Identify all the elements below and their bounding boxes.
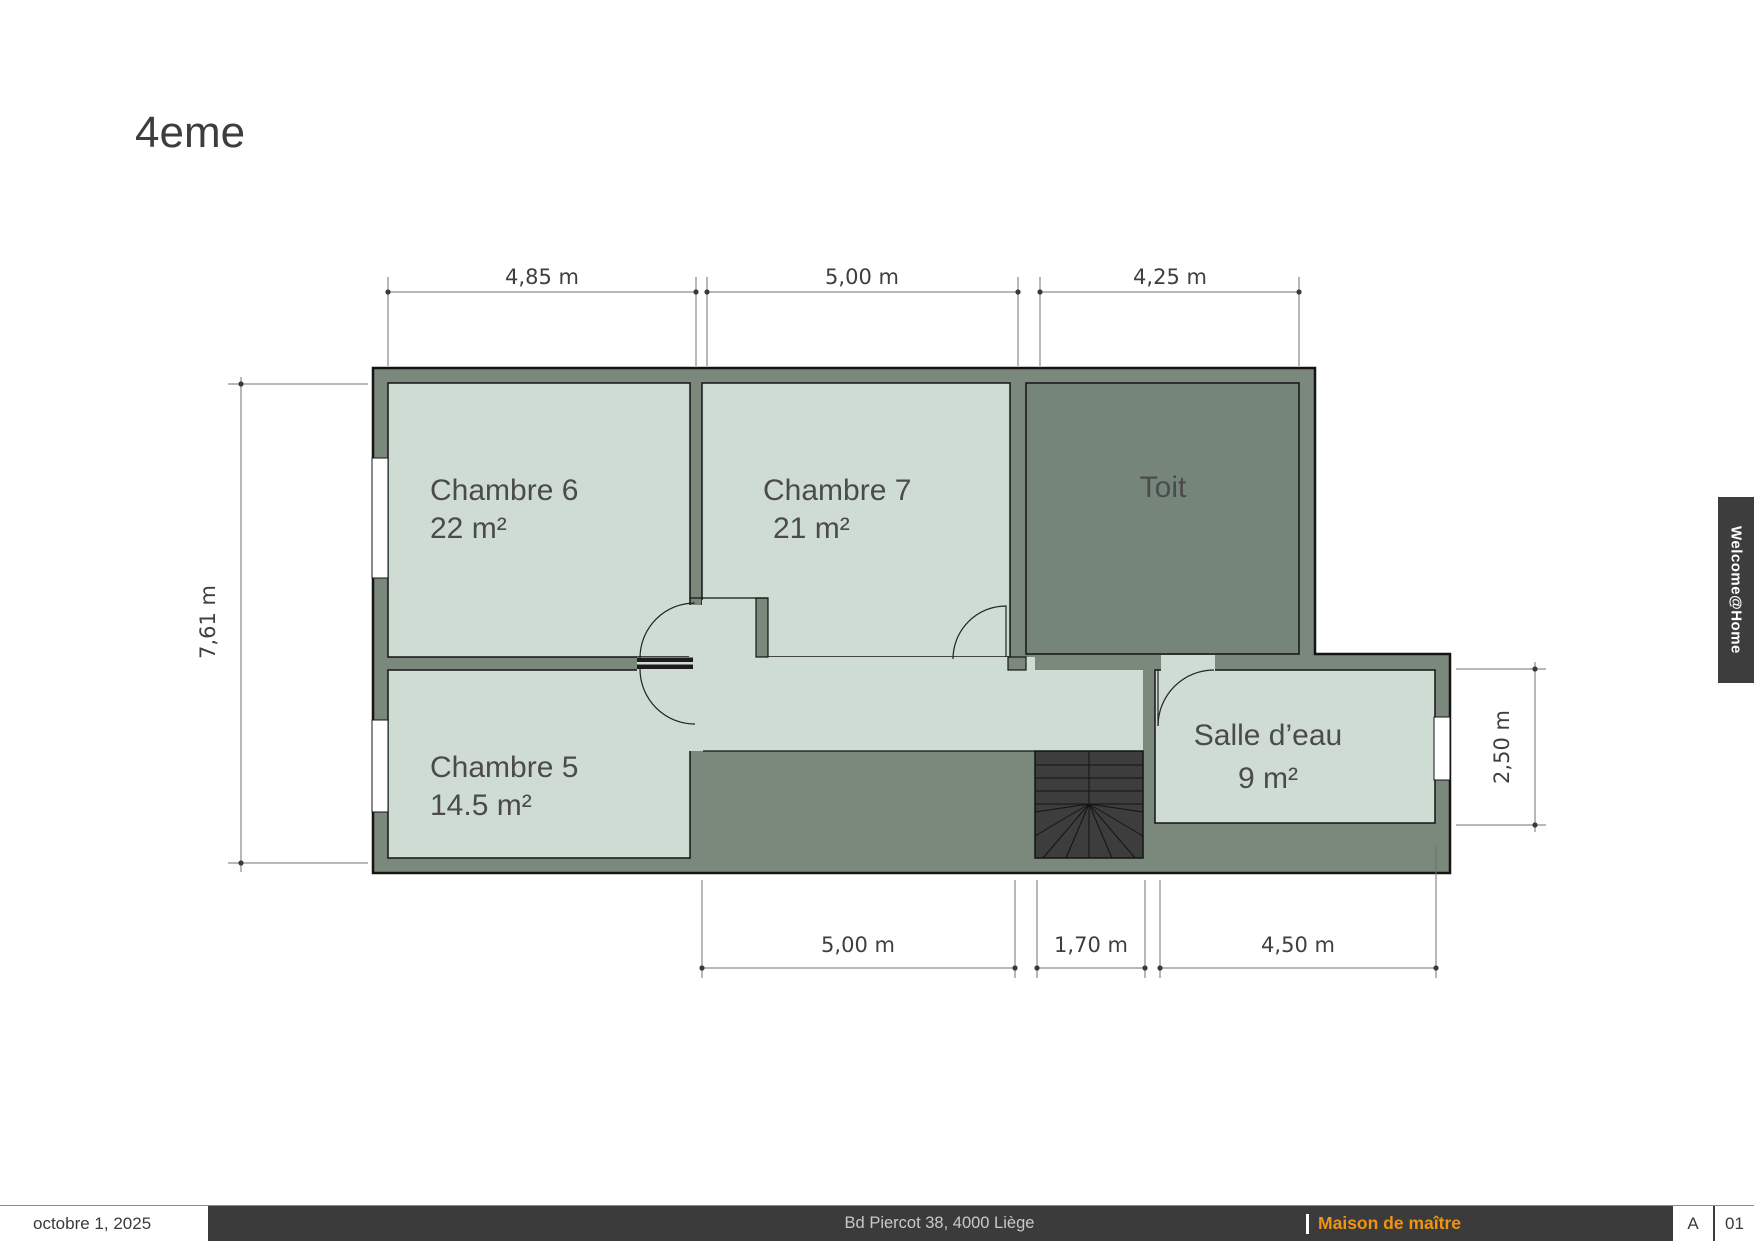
dim-bottom-1: 5,00 m bbox=[821, 933, 895, 957]
welcome-home-tab[interactable]: Welcome@Home bbox=[1718, 497, 1754, 683]
stair-landing bbox=[1035, 670, 1143, 751]
dim-bottom-2: 1,70 m bbox=[1054, 933, 1128, 957]
double-door-leaf-a bbox=[637, 658, 693, 663]
window-left-upper bbox=[372, 458, 388, 578]
area-chambre7: 21 m² bbox=[773, 512, 850, 545]
area-chambre5: 14.5 m² bbox=[430, 789, 532, 822]
footer-date: octobre 1, 2025 bbox=[0, 1206, 208, 1241]
pocket-wall bbox=[756, 598, 768, 657]
dimension-top: 4,85 m 5,00 m 4,25 m bbox=[385, 265, 1301, 366]
footer-dark-bar: Bd Piercot 38, 4000 Liège Maison de maît… bbox=[208, 1206, 1671, 1241]
page: 4eme bbox=[0, 0, 1754, 1241]
footer-sheet-number: 01 bbox=[1713, 1206, 1754, 1241]
dimension-left: 7,61 m bbox=[196, 377, 368, 872]
footer-project: Maison de maître bbox=[1306, 1206, 1461, 1241]
footer-project-label: Maison de maître bbox=[1318, 1213, 1461, 1234]
footer-bar: octobre 1, 2025 Bd Piercot 38, 4000 Lièg… bbox=[0, 1205, 1754, 1241]
label-chambre6: Chambre 6 bbox=[430, 474, 578, 507]
label-chambre7: Chambre 7 bbox=[763, 474, 911, 507]
dim-bottom-3: 4,50 m bbox=[1261, 933, 1335, 957]
window-right-salle-deau bbox=[1434, 717, 1450, 780]
area-chambre6: 22 m² bbox=[430, 512, 507, 545]
dim-left: 7,61 m bbox=[196, 585, 220, 659]
double-door-leaf-b bbox=[637, 665, 693, 670]
dim-top-3: 4,25 m bbox=[1133, 265, 1207, 289]
staircase bbox=[1035, 751, 1143, 858]
footer-revision: A bbox=[1671, 1206, 1713, 1241]
label-chambre5: Chambre 5 bbox=[430, 751, 578, 784]
dim-top-1: 4,85 m bbox=[505, 265, 579, 289]
label-toit: Toit bbox=[1140, 471, 1187, 504]
window-left-lower bbox=[372, 720, 388, 812]
dim-right: 2,50 m bbox=[1490, 710, 1514, 784]
label-salle-deau: Salle d’eau bbox=[1194, 719, 1342, 752]
room-toit bbox=[1026, 383, 1299, 654]
area-salle-deau: 9 m² bbox=[1238, 762, 1298, 795]
divider-foot-wall bbox=[1008, 657, 1026, 670]
dimension-right: 2,50 m bbox=[1456, 662, 1546, 832]
salle-deau-door-gap bbox=[1161, 655, 1215, 672]
project-tick-icon bbox=[1306, 1214, 1309, 1234]
floor-plan: Chambre 6 22 m² Chambre 7 21 m² Toit Cha… bbox=[0, 0, 1754, 1241]
hall-main bbox=[637, 657, 1035, 751]
dim-top-2: 5,00 m bbox=[825, 265, 899, 289]
